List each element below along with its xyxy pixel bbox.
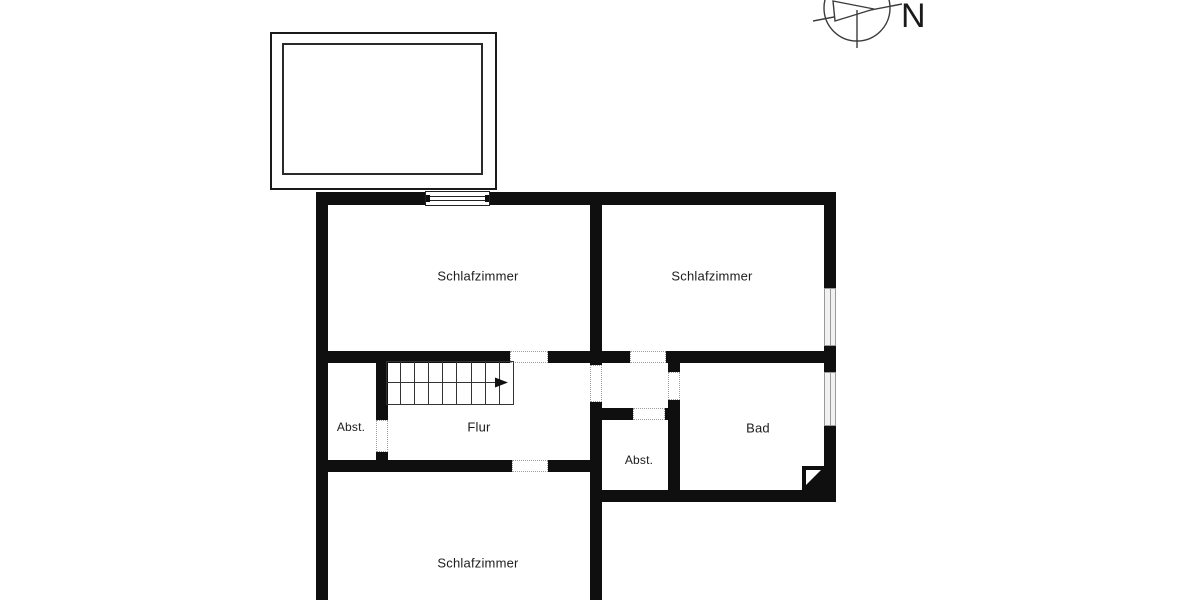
doorway-schlafzimmer-nw-flur (510, 351, 548, 363)
balcony-inner-edge (282, 43, 483, 175)
wall-mid-horizontal-b (548, 351, 630, 363)
wall-bad-left-a (668, 363, 680, 372)
wall-outer-bottom-right (590, 490, 836, 502)
doorway-schlafzimmer-no-vestibule (630, 351, 666, 363)
doorway-vestibule-abst-mitte (633, 408, 665, 420)
wall-flur-bottom-a (316, 460, 512, 472)
balcony-window-icon (425, 191, 490, 206)
doorway-vestibule-bad (668, 372, 680, 400)
room-label-bad: Bad (746, 421, 770, 436)
window-cap-left (426, 195, 430, 202)
balcony (270, 32, 497, 190)
stair-direction-arrow (495, 378, 508, 388)
chimney-icon (802, 466, 826, 490)
wall-outer-right-a (824, 192, 836, 288)
wall-outer-top-a (316, 192, 425, 205)
wall-outer-top-b (490, 192, 836, 205)
wall-mid-vertical-upper (590, 192, 602, 365)
window-glass-lines (426, 196, 489, 201)
room-label-abst-west: Abst. (337, 420, 365, 434)
wall-mid-vertical-lower (590, 402, 602, 600)
floor-plan: N Schlafzimmer Schlafzimmer Abst. Flur A… (0, 0, 1200, 600)
wall-abst-mitte-top-a (602, 408, 633, 420)
staircase-icon (386, 361, 515, 406)
window-cap-right (485, 195, 489, 202)
room-label-schlafzimmer-nordost: Schlafzimmer (671, 269, 752, 284)
wall-mid-horizontal-c (666, 351, 836, 363)
window-schlafzimmer-nordost-icon (824, 288, 836, 346)
doorway-flur-vestibule (590, 365, 602, 402)
wall-flur-bottom-b (548, 460, 602, 472)
room-label-abst-mitte: Abst. (625, 453, 653, 467)
wall-abst-mitte-top-b (665, 408, 680, 420)
window-bad-icon (824, 372, 836, 426)
room-label-flur: Flur (467, 420, 490, 435)
room-label-schlafzimmer-nordwest: Schlafzimmer (437, 269, 518, 284)
doorway-flur-schlafzimmer-sued (512, 460, 548, 472)
wall-outer-left (316, 192, 328, 600)
room-label-schlafzimmer-sued: Schlafzimmer (437, 556, 518, 571)
compass-north-label: N (901, 0, 926, 36)
wall-abst-west-b (376, 452, 388, 460)
doorway-abst-west (376, 420, 388, 452)
